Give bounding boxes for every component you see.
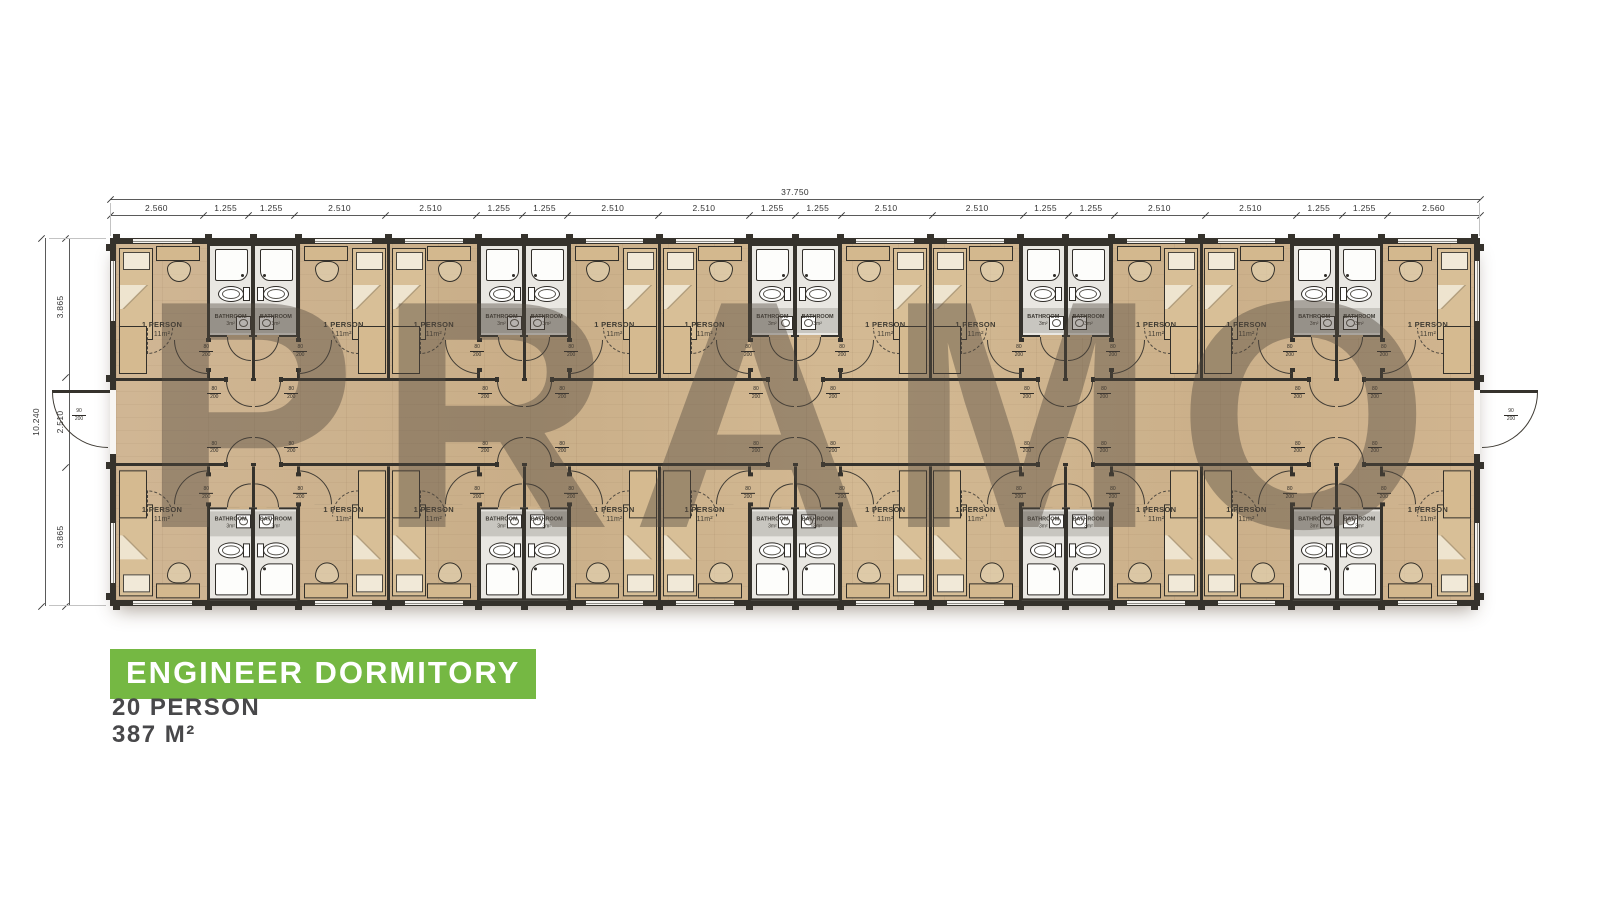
shower-head-dot bbox=[1053, 567, 1056, 570]
door-height-value: 200 bbox=[826, 394, 840, 401]
door-height-value: 200 bbox=[1377, 352, 1391, 359]
vestibule-stub-wall bbox=[1064, 466, 1067, 507]
door-jamb bbox=[1290, 338, 1295, 342]
dimension-segment-label: 2.510 bbox=[875, 203, 898, 213]
door-height-value: 200 bbox=[199, 352, 213, 359]
toilet-seat bbox=[1079, 545, 1097, 555]
wall-stud bbox=[106, 593, 111, 600]
corridor-door-size: 80200 bbox=[555, 441, 569, 456]
corridor-wall bbox=[281, 378, 497, 381]
bed-pillow bbox=[667, 574, 694, 592]
corridor-stub-tip bbox=[1334, 463, 1339, 466]
bathroom-door-arc bbox=[797, 337, 821, 361]
door-jamb bbox=[766, 462, 770, 467]
vestibule-stub-wall bbox=[1335, 337, 1338, 378]
bathroom-door-arc bbox=[255, 483, 279, 507]
door-jamb bbox=[1091, 377, 1095, 382]
door-height-value: 200 bbox=[199, 493, 213, 500]
door-width-value: 80 bbox=[749, 441, 763, 449]
window-glass-line bbox=[1127, 241, 1185, 242]
door-height-value: 200 bbox=[1012, 352, 1026, 359]
shower bbox=[1298, 563, 1331, 595]
shower bbox=[531, 249, 564, 281]
toilet-seat bbox=[809, 545, 827, 555]
door-jamb bbox=[567, 338, 572, 342]
chair bbox=[1399, 562, 1423, 583]
bathroom-door-size: 80200 bbox=[1283, 344, 1297, 359]
wall-stud bbox=[746, 234, 753, 239]
bed-blanket-fold bbox=[624, 535, 655, 559]
window-glass-line bbox=[133, 241, 192, 242]
desk bbox=[1117, 246, 1161, 261]
wall-stud bbox=[1062, 605, 1069, 610]
room-label-area: 11m² bbox=[389, 330, 479, 339]
toilet-seat bbox=[763, 545, 781, 555]
corridor-wall bbox=[552, 378, 768, 381]
window bbox=[405, 601, 463, 605]
door-jamb bbox=[1019, 472, 1024, 476]
room-label-area: 11m² bbox=[1201, 330, 1291, 339]
room-label: 1 PERSON11m² bbox=[930, 504, 1020, 524]
door-height-value: 200 bbox=[207, 394, 221, 401]
wall-stud bbox=[1471, 605, 1478, 610]
corridor-door-arc bbox=[1067, 381, 1093, 407]
bathroom-label-title: BATHROOM bbox=[1023, 516, 1064, 523]
door-jamb bbox=[821, 462, 825, 467]
window bbox=[315, 601, 373, 605]
door-height-value: 200 bbox=[1012, 493, 1026, 500]
door-width-value: 80 bbox=[470, 485, 484, 493]
shower-head-dot bbox=[1346, 567, 1349, 570]
wall-stud bbox=[113, 605, 120, 610]
door-width-value: 80 bbox=[1020, 386, 1034, 394]
bathroom-door-arc bbox=[1339, 337, 1363, 361]
shower bbox=[802, 249, 835, 281]
door-width-value: 80 bbox=[293, 344, 307, 352]
interior-wall bbox=[1200, 466, 1203, 600]
toilet-seat bbox=[493, 545, 511, 555]
wall-stud bbox=[566, 605, 573, 610]
bed-blanket-fold bbox=[1438, 535, 1469, 559]
door-jamb bbox=[296, 472, 301, 476]
bathroom-label: BATHROOM3m² bbox=[210, 516, 251, 530]
dimension-segment-label: 1.255 bbox=[806, 203, 829, 213]
room-label-title: 1 PERSON bbox=[1382, 320, 1474, 330]
bathroom-door-size: 80200 bbox=[564, 344, 578, 359]
wall-stud bbox=[295, 605, 302, 610]
bathroom-label: BATHROOM3m² bbox=[255, 516, 296, 530]
bed-blanket-fold bbox=[1165, 535, 1196, 559]
corridor-door-size: 80200 bbox=[1097, 386, 1111, 401]
door-height-value: 200 bbox=[749, 394, 763, 401]
toilet bbox=[1301, 542, 1327, 558]
bed-pillow bbox=[1441, 574, 1468, 592]
bed-blanket-fold bbox=[1165, 285, 1196, 309]
bathroom-door-arc bbox=[1068, 483, 1092, 507]
room-label: 1 PERSON11m² bbox=[660, 320, 750, 340]
toilet bbox=[489, 286, 515, 302]
wall-stud bbox=[521, 234, 528, 239]
window bbox=[1127, 601, 1185, 605]
room-label-area: 11m² bbox=[1382, 514, 1474, 523]
door-width-value: 80 bbox=[207, 386, 221, 394]
bed-pillow bbox=[627, 574, 654, 592]
desk bbox=[1388, 583, 1432, 598]
bed-pillow bbox=[627, 252, 654, 270]
chair bbox=[1251, 261, 1275, 282]
door-height-value: 200 bbox=[555, 394, 569, 401]
toilet-tank bbox=[1055, 287, 1062, 301]
bathroom-label-title: BATHROOM bbox=[1294, 516, 1335, 523]
bathroom-door-size: 80200 bbox=[470, 485, 484, 500]
door-width-value: 80 bbox=[1020, 441, 1034, 449]
bed-pillow bbox=[1208, 574, 1235, 592]
dimension-tick bbox=[62, 464, 69, 471]
door-height-value: 200 bbox=[284, 448, 298, 455]
door-jamb bbox=[567, 368, 572, 372]
bathroom-label-title: BATHROOM bbox=[255, 516, 296, 523]
shower-head-dot bbox=[1075, 274, 1078, 277]
bathroom-label-area: 3m² bbox=[1023, 523, 1064, 530]
door-height-value: 200 bbox=[1368, 394, 1382, 401]
wall-stud bbox=[106, 462, 111, 469]
door-jamb bbox=[550, 462, 554, 467]
bed-pillow bbox=[123, 252, 150, 270]
bathroom: BATHROOM3m² bbox=[795, 244, 840, 337]
door-width-value: 90 bbox=[72, 408, 86, 416]
window-glass-line bbox=[113, 261, 114, 321]
wall-stud bbox=[1378, 605, 1385, 610]
window-glass-line bbox=[947, 603, 1005, 604]
room-label-area: 11m² bbox=[298, 514, 388, 523]
window bbox=[111, 261, 115, 321]
shower-head-dot bbox=[534, 274, 537, 277]
room-label-title: 1 PERSON bbox=[569, 504, 659, 514]
shower-head-dot bbox=[1324, 274, 1327, 277]
dimension-line-total-height bbox=[45, 238, 46, 606]
door-jamb bbox=[1362, 377, 1366, 382]
bed-blanket-fold bbox=[664, 285, 695, 309]
room-label-area: 11m² bbox=[840, 330, 930, 339]
door-jamb bbox=[1380, 472, 1385, 476]
shower bbox=[486, 249, 519, 281]
bathroom-label-title: BATHROOM bbox=[481, 516, 522, 523]
toilet-seat bbox=[1350, 545, 1368, 555]
floorplan-sheet: 37.7502.5601.2551.2552.5102.5101.2551.25… bbox=[0, 0, 1600, 900]
bathroom-label-area: 3m² bbox=[210, 321, 251, 328]
room-label: 1 PERSON11m² bbox=[389, 320, 479, 340]
shower bbox=[531, 563, 564, 595]
wall-stud bbox=[792, 605, 799, 610]
wall-stud bbox=[1479, 375, 1484, 382]
door-height-value: 200 bbox=[1020, 394, 1034, 401]
bathroom: BATHROOM3m² bbox=[524, 244, 569, 337]
bathroom-door-size: 80200 bbox=[1283, 485, 1297, 500]
bathroom-label: BATHROOM3m² bbox=[1339, 516, 1380, 530]
toilet-tank bbox=[1055, 543, 1062, 557]
door-jamb bbox=[1307, 462, 1311, 467]
door-jamb bbox=[1290, 472, 1295, 476]
door-width-value: 90 bbox=[1504, 408, 1518, 416]
corridor-door-size: 80200 bbox=[1020, 386, 1034, 401]
bathroom-door-arc bbox=[227, 337, 251, 361]
bathroom: BATHROOM3m² bbox=[1021, 244, 1066, 337]
corridor-door-size: 80200 bbox=[1291, 441, 1305, 456]
bathroom: BATHROOM3m² bbox=[208, 244, 253, 337]
door-height-value: 200 bbox=[555, 448, 569, 455]
extension-line bbox=[1479, 203, 1480, 236]
toilet bbox=[534, 542, 560, 558]
door-jamb bbox=[1362, 462, 1366, 467]
bathroom: BATHROOM3m² bbox=[479, 244, 524, 337]
bathroom-door-arc bbox=[769, 337, 793, 361]
shower bbox=[1298, 249, 1331, 281]
toilet-tank bbox=[257, 543, 264, 557]
bed-blanket-fold bbox=[1205, 285, 1236, 309]
door-height-value: 200 bbox=[1291, 448, 1305, 455]
bed-blanket-fold bbox=[353, 535, 384, 559]
corridor-stub-tip bbox=[522, 463, 527, 466]
door-height-value: 200 bbox=[284, 394, 298, 401]
toilet bbox=[1075, 542, 1101, 558]
bathroom-label: BATHROOM3m² bbox=[1294, 314, 1335, 328]
chair bbox=[438, 562, 462, 583]
bathroom-label-title: BATHROOM bbox=[526, 516, 567, 523]
window bbox=[1475, 261, 1479, 321]
bathroom-label-title: BATHROOM bbox=[797, 516, 838, 523]
window bbox=[133, 601, 192, 605]
desk bbox=[427, 583, 471, 598]
door-width-value: 80 bbox=[1291, 386, 1305, 394]
bathroom-door-arc bbox=[227, 483, 251, 507]
bathroom: BATHROOM3m² bbox=[1066, 244, 1111, 337]
bathroom-label-area: 3m² bbox=[481, 523, 522, 530]
corridor-door-size: 80200 bbox=[826, 441, 840, 456]
window-glass-line bbox=[1477, 523, 1478, 583]
shower-head-dot bbox=[263, 567, 266, 570]
toilet bbox=[1030, 286, 1056, 302]
corridor-door-size: 80200 bbox=[478, 441, 492, 456]
room-label: 1 PERSON11m² bbox=[840, 320, 930, 340]
corridor-door-size: 80200 bbox=[1291, 386, 1305, 401]
chair bbox=[1128, 562, 1152, 583]
bathroom-door-arc bbox=[255, 337, 279, 361]
bed-blanket-fold bbox=[624, 285, 655, 309]
wall-stud bbox=[385, 234, 392, 239]
wall-stud bbox=[250, 605, 257, 610]
bathroom-label: BATHROOM3m² bbox=[255, 314, 296, 328]
dimension-segment-label: 2.560 bbox=[145, 203, 168, 213]
door-height-value: 200 bbox=[478, 448, 492, 455]
door-height-value: 200 bbox=[826, 448, 840, 455]
chair bbox=[709, 261, 733, 282]
door-jamb bbox=[567, 502, 572, 506]
wall-stud bbox=[1108, 605, 1115, 610]
room-label-title: 1 PERSON bbox=[1111, 320, 1201, 330]
door-height-value: 200 bbox=[1106, 493, 1120, 500]
door-width-value: 80 bbox=[1377, 344, 1391, 352]
chair bbox=[167, 562, 191, 583]
toilet-tank bbox=[1326, 287, 1333, 301]
corridor-door-arc bbox=[497, 437, 523, 463]
shower bbox=[215, 249, 248, 281]
shower-head-dot bbox=[782, 274, 785, 277]
wall-stud bbox=[656, 234, 663, 239]
shower-head-dot bbox=[1324, 567, 1327, 570]
bathroom-label: BATHROOM3m² bbox=[526, 516, 567, 530]
rooms-band-top: 1 PERSON11m²BATHROOM3m²80200BATHROOM3m²8… bbox=[116, 244, 1474, 378]
wall-stud bbox=[927, 234, 934, 239]
corridor-door-arc bbox=[255, 437, 281, 463]
door-height-value: 200 bbox=[1020, 448, 1034, 455]
window bbox=[586, 239, 644, 243]
wall-stud bbox=[1108, 234, 1115, 239]
wall-stud bbox=[656, 605, 663, 610]
corridor-stub-tip bbox=[793, 463, 798, 466]
bed-pillow bbox=[937, 252, 964, 270]
dimension-segment-label: 1.255 bbox=[214, 203, 237, 213]
bed-blanket-fold bbox=[1438, 285, 1469, 309]
window bbox=[1398, 601, 1457, 605]
bathroom: BATHROOM3m² bbox=[1337, 244, 1382, 337]
corridor-wall bbox=[552, 463, 768, 466]
door-jamb bbox=[1019, 502, 1024, 506]
shower-head-dot bbox=[512, 567, 515, 570]
corridor-door-size: 80200 bbox=[284, 386, 298, 401]
corridor-door-arc bbox=[797, 381, 823, 407]
chair bbox=[709, 562, 733, 583]
bathroom-label-area: 3m² bbox=[1339, 321, 1380, 328]
desk bbox=[969, 583, 1013, 598]
door-jamb bbox=[206, 338, 211, 342]
corridor-door-arc bbox=[768, 381, 794, 407]
door-width-value: 80 bbox=[741, 344, 755, 352]
room-label-area: 11m² bbox=[298, 330, 388, 339]
bed-pillow bbox=[356, 252, 383, 270]
toilet-seat bbox=[1305, 545, 1323, 555]
toilet-seat bbox=[538, 545, 556, 555]
door-jamb bbox=[206, 368, 211, 372]
bathroom-door-arc bbox=[526, 483, 550, 507]
corridor-door-arc bbox=[226, 381, 252, 407]
bathroom-label-title: BATHROOM bbox=[255, 314, 296, 321]
window-glass-line bbox=[1218, 603, 1276, 604]
window bbox=[947, 239, 1005, 243]
door-height-value: 200 bbox=[1106, 352, 1120, 359]
bathroom-label-title: BATHROOM bbox=[210, 314, 251, 321]
bathroom-label-area: 3m² bbox=[1294, 523, 1335, 530]
room-label: 1 PERSON11m² bbox=[389, 504, 479, 524]
dimension-tick bbox=[38, 603, 45, 610]
room-label: 1 PERSON11m² bbox=[298, 320, 388, 340]
bathroom-door-size: 80200 bbox=[1012, 485, 1026, 500]
bathroom: BATHROOM3m² bbox=[1292, 507, 1337, 600]
interior-wall bbox=[1200, 244, 1203, 378]
toilet-tank bbox=[1340, 287, 1347, 301]
corridor-door-arc bbox=[1309, 381, 1335, 407]
window bbox=[1127, 239, 1185, 243]
door-jamb bbox=[1109, 472, 1114, 476]
door-height-value: 200 bbox=[564, 352, 578, 359]
bathroom: BATHROOM3m² bbox=[253, 244, 298, 337]
toilet bbox=[759, 286, 785, 302]
bathroom: BATHROOM3m² bbox=[750, 244, 795, 337]
door-width-value: 80 bbox=[1283, 344, 1297, 352]
window bbox=[947, 601, 1005, 605]
vestibule-stub-wall bbox=[1335, 466, 1338, 507]
shower-head-dot bbox=[534, 567, 537, 570]
window bbox=[1218, 239, 1276, 243]
dimension-segment-label: 3.865 bbox=[55, 525, 65, 548]
dimension-segment-label: 1.255 bbox=[260, 203, 283, 213]
chair bbox=[315, 562, 339, 583]
corridor-wall bbox=[1093, 463, 1309, 466]
toilet bbox=[1075, 286, 1101, 302]
bathroom-label: BATHROOM3m² bbox=[1068, 314, 1109, 328]
desk bbox=[304, 583, 348, 598]
wall-stud bbox=[1333, 605, 1340, 610]
bed-pillow bbox=[1441, 252, 1468, 270]
door-height-value: 200 bbox=[1368, 448, 1382, 455]
bed-pillow bbox=[356, 574, 383, 592]
exterior-door-opening bbox=[110, 390, 116, 454]
bathroom-door-size: 80200 bbox=[1377, 344, 1391, 359]
dimension-segment-label: 2.510 bbox=[693, 203, 716, 213]
window-glass-line bbox=[113, 523, 114, 583]
room-label: 1 PERSON11m² bbox=[569, 320, 659, 340]
bathroom-label-area: 3m² bbox=[752, 523, 793, 530]
door-height-value: 200 bbox=[835, 352, 849, 359]
window bbox=[111, 523, 115, 583]
desk bbox=[575, 246, 619, 261]
shower bbox=[1343, 249, 1376, 281]
dimension-segment-label: 1.255 bbox=[1307, 203, 1330, 213]
wall-stud bbox=[205, 234, 212, 239]
corridor-door-arc bbox=[255, 381, 281, 407]
door-width-value: 80 bbox=[1097, 441, 1111, 449]
desk bbox=[846, 583, 890, 598]
door-height-value: 200 bbox=[207, 448, 221, 455]
toilet-tank bbox=[514, 543, 521, 557]
corridor-stub-tip bbox=[251, 463, 256, 466]
desk bbox=[575, 583, 619, 598]
interior-wall bbox=[658, 466, 661, 600]
door-height-value: 200 bbox=[478, 394, 492, 401]
dimension-segment-label: 1.255 bbox=[1080, 203, 1103, 213]
toilet-tank bbox=[243, 287, 250, 301]
window bbox=[1398, 239, 1457, 243]
chair bbox=[438, 261, 462, 282]
door-width-value: 80 bbox=[1012, 485, 1026, 493]
bathroom-label-area: 3m² bbox=[255, 321, 296, 328]
corridor-door-size: 80200 bbox=[826, 386, 840, 401]
door-jamb bbox=[567, 472, 572, 476]
bathroom-label-title: BATHROOM bbox=[797, 314, 838, 321]
room-label-area: 11m² bbox=[660, 514, 750, 523]
window-glass-line bbox=[676, 241, 734, 242]
toilet-seat bbox=[809, 289, 827, 299]
wall-stud bbox=[521, 605, 528, 610]
toilet-seat bbox=[1034, 289, 1052, 299]
desk bbox=[698, 246, 742, 261]
wall-stud bbox=[792, 234, 799, 239]
bathroom: BATHROOM3m² bbox=[524, 507, 569, 600]
bathroom-label-title: BATHROOM bbox=[481, 314, 522, 321]
door-width-value: 80 bbox=[478, 441, 492, 449]
shower-head-dot bbox=[805, 567, 808, 570]
toilet bbox=[1346, 542, 1372, 558]
corridor-door-arc bbox=[1309, 437, 1335, 463]
